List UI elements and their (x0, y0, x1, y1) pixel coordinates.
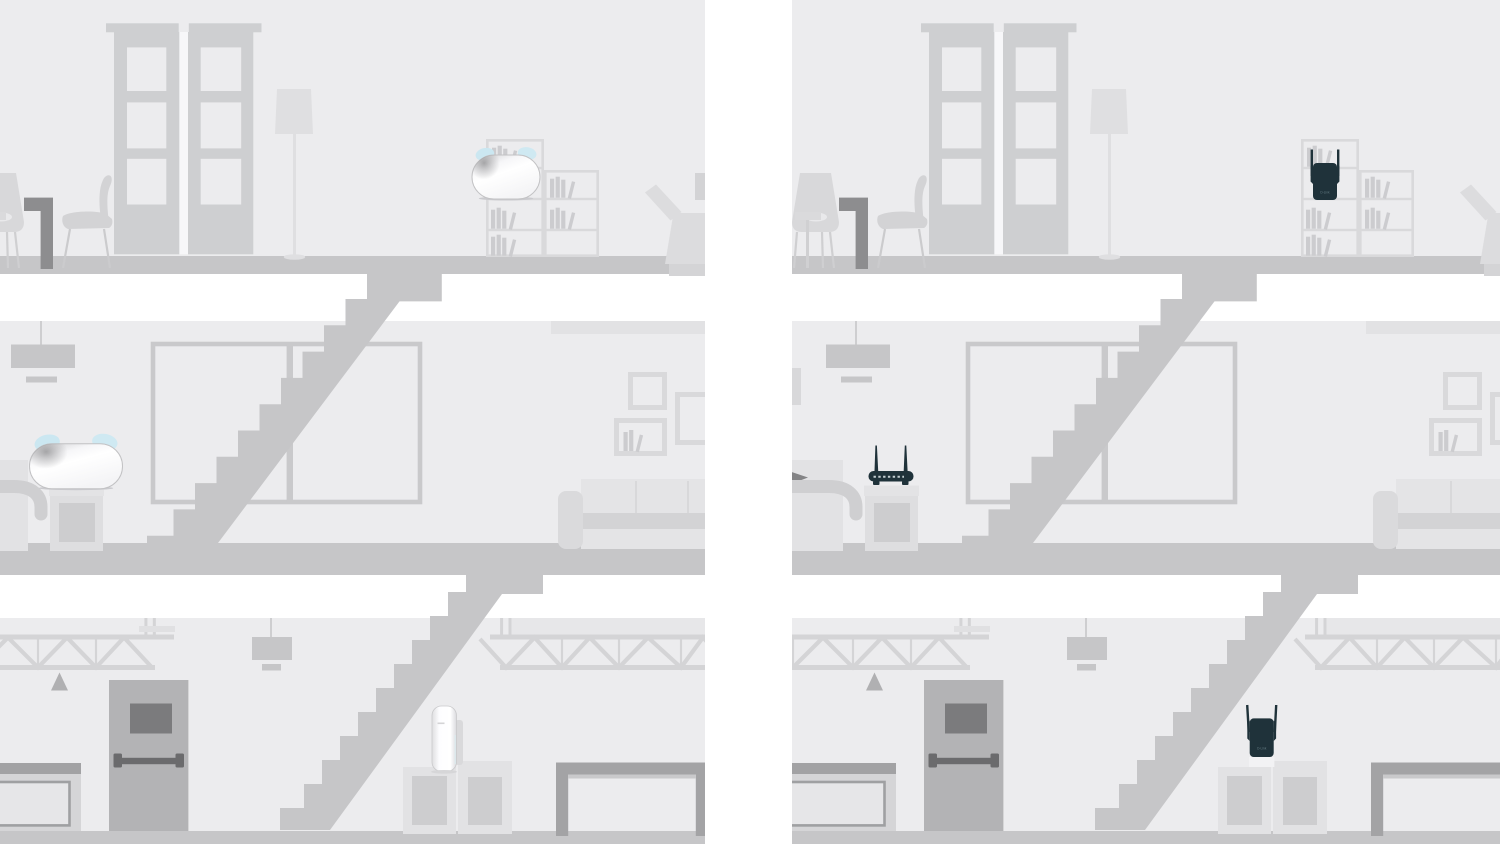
svg-text:D-Link: D-Link (1257, 747, 1267, 751)
svg-text:D-Link: D-Link (1320, 191, 1330, 195)
